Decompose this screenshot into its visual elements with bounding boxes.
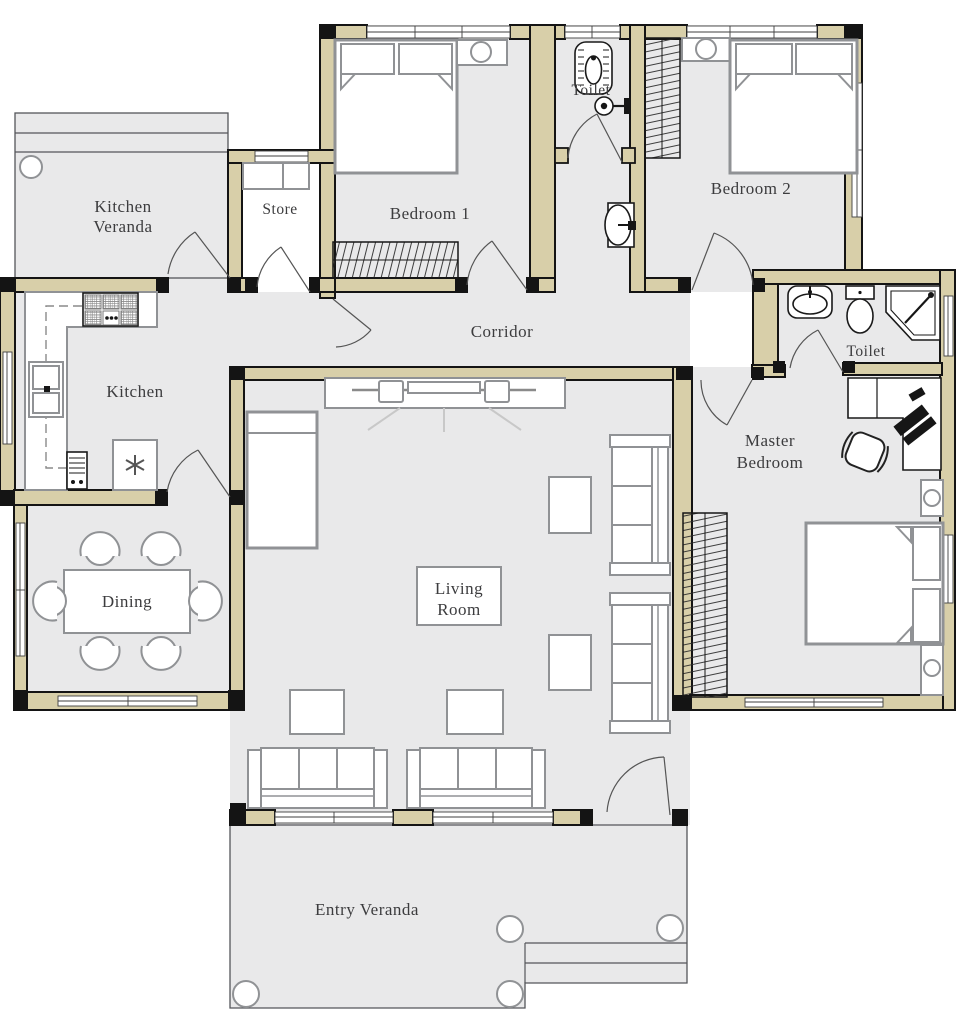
toilet-wc <box>846 286 874 333</box>
room-label-kitchen-veranda-1: Kitchen <box>94 197 151 216</box>
wardrobe-bedroom-1 <box>333 242 458 278</box>
bed-master <box>806 523 943 644</box>
window <box>565 26 620 38</box>
tv <box>408 382 480 393</box>
window <box>3 352 12 444</box>
sofa-3-seat <box>610 593 670 733</box>
wash-basin-toilet-2 <box>788 286 832 318</box>
side-table <box>290 690 344 734</box>
window <box>687 26 817 38</box>
room-label-toilet-1: Toilet <box>572 82 611 99</box>
water-heater <box>67 452 87 489</box>
pillow <box>341 44 394 74</box>
lamp-icon <box>924 660 940 676</box>
wardrobe-bedroom-2 <box>645 38 680 158</box>
column <box>233 981 259 1007</box>
room-label-dining: Dining <box>102 592 152 611</box>
nightstand-master <box>921 480 943 516</box>
daybed <box>247 412 317 548</box>
sofa-3-seat <box>248 748 387 808</box>
window <box>16 523 25 656</box>
kitchen-sink <box>29 362 63 417</box>
room-label-living-1: Living <box>435 579 483 598</box>
room-label-master-2: Bedroom <box>737 453 804 472</box>
side-table <box>447 690 503 734</box>
floor-plan-svg: Kitchen Veranda Store Bedroom 1 Toilet B… <box>0 0 971 1030</box>
sofa-3-seat <box>407 748 545 808</box>
room-label-toilet-2: Toilet <box>847 343 886 360</box>
room-label-kitchen-veranda-2: Veranda <box>93 217 152 236</box>
speaker <box>379 381 403 402</box>
room-label-entry-veranda: Entry Veranda <box>315 900 419 919</box>
lamp-icon <box>924 490 940 506</box>
window <box>433 812 553 823</box>
nightstand-master <box>921 645 943 695</box>
store-shelf <box>243 163 309 189</box>
door-store <box>257 247 310 292</box>
pillow <box>913 527 940 580</box>
side-table <box>549 635 591 690</box>
boiler <box>113 440 157 490</box>
pillow <box>796 44 852 74</box>
pillow <box>736 44 792 74</box>
room-label-kitchen: Kitchen <box>106 382 163 401</box>
room-label-bedroom-2: Bedroom 2 <box>711 179 792 198</box>
window <box>745 698 883 707</box>
column <box>657 915 683 941</box>
wardrobe-master <box>683 513 727 697</box>
pillow <box>399 44 452 74</box>
side-table <box>549 477 591 533</box>
window <box>255 151 308 162</box>
wash-basin-lobby <box>605 203 636 247</box>
window <box>944 296 953 356</box>
lamp-icon <box>471 42 491 62</box>
speaker <box>485 381 509 402</box>
column <box>497 981 523 1007</box>
window <box>944 535 953 603</box>
stove <box>83 293 138 326</box>
nightstand-bedroom-2 <box>682 38 730 61</box>
floor-plan: Kitchen Veranda Store Bedroom 1 Toilet B… <box>0 0 971 1030</box>
room-label-store: Store <box>262 201 297 218</box>
pillow <box>913 589 940 642</box>
entry-veranda-area <box>230 825 687 1008</box>
bed-bedroom-2 <box>730 40 857 173</box>
column <box>497 916 523 942</box>
room-label-living-2: Room <box>437 600 481 619</box>
living-room-label-box: Living Room <box>417 567 501 625</box>
room-label-bedroom-1: Bedroom 1 <box>390 204 471 223</box>
kitchen-veranda-area <box>15 113 228 278</box>
bed-bedroom-1 <box>335 40 457 173</box>
room-label-master-1: Master <box>745 431 795 450</box>
window <box>367 26 510 38</box>
window <box>58 696 197 706</box>
room-label-corridor: Corridor <box>471 322 534 341</box>
sofa-3-seat <box>610 435 670 575</box>
window <box>275 812 393 823</box>
nightstand-bedroom-1 <box>457 40 507 65</box>
lamp-icon <box>696 39 716 59</box>
column <box>20 156 42 178</box>
